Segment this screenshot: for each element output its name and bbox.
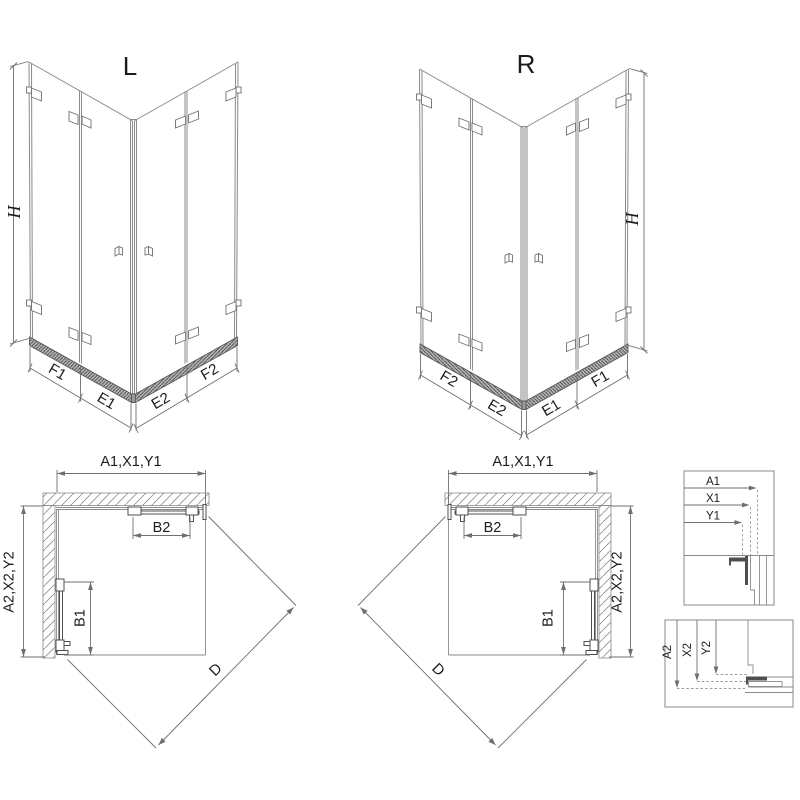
detail-a1-label: A1 <box>706 476 720 488</box>
wall-section-top <box>43 493 209 506</box>
plan-right-b2-label: B2 <box>484 520 502 536</box>
plan-right-top-dim-label: A1,X1,Y1 <box>492 454 553 470</box>
detail-y2-label: Y2 <box>701 641 713 655</box>
shower-enclosure-diagram: L H F1 E1 E2 F2 R H F2 E2 E1 F1 A1,X1,Y1… <box>0 0 800 800</box>
plan-left-side-dim-label: A2,X2,Y2 <box>2 551 18 612</box>
wall-section-left <box>43 506 55 659</box>
iso-right-height-label: H <box>622 212 642 227</box>
detail-box-vertical-dims: A2 X2 Y2 <box>662 620 793 707</box>
plan-right-b1-label: B1 <box>541 609 557 627</box>
detail-y1-label: Y1 <box>706 511 720 523</box>
detail-box-horizontal-dims: A1 X1 Y1 <box>684 471 774 605</box>
plan-view-left: A1,X1,Y1 A2,X2,Y2 B2 B1 D <box>2 454 297 748</box>
iso-left-title: L <box>123 51 137 81</box>
iso-view-right: R H F2 E2 E1 F1 <box>417 49 648 440</box>
detail-x2-label: X2 <box>682 643 694 657</box>
plan-right-diagonal-label: D <box>428 660 448 680</box>
iso-left-height-label: H <box>4 205 24 220</box>
plan-left-b1-label: B1 <box>73 609 89 627</box>
technical-drawing-page: L H F1 E1 E2 F2 R H F2 E2 E1 F1 A1,X1,Y1… <box>0 0 800 800</box>
plan-left-diagonal-label: D <box>206 660 226 680</box>
plan-view-right: A1,X1,Y1 A2,X2,Y2 B2 B1 D <box>358 454 634 748</box>
plan-right-side-dim-label: A2,X2,Y2 <box>610 551 626 612</box>
iso-right-title: R <box>517 49 536 79</box>
wall-section-top <box>445 493 611 506</box>
detail-x1-label: X1 <box>706 493 720 505</box>
plan-left-top-dim-label: A1,X1,Y1 <box>100 454 161 470</box>
iso-view-left: L H F1 E1 E2 F2 <box>4 51 241 433</box>
plan-left-b2-label: B2 <box>153 520 171 536</box>
detail-a2-label: A2 <box>662 645 674 659</box>
